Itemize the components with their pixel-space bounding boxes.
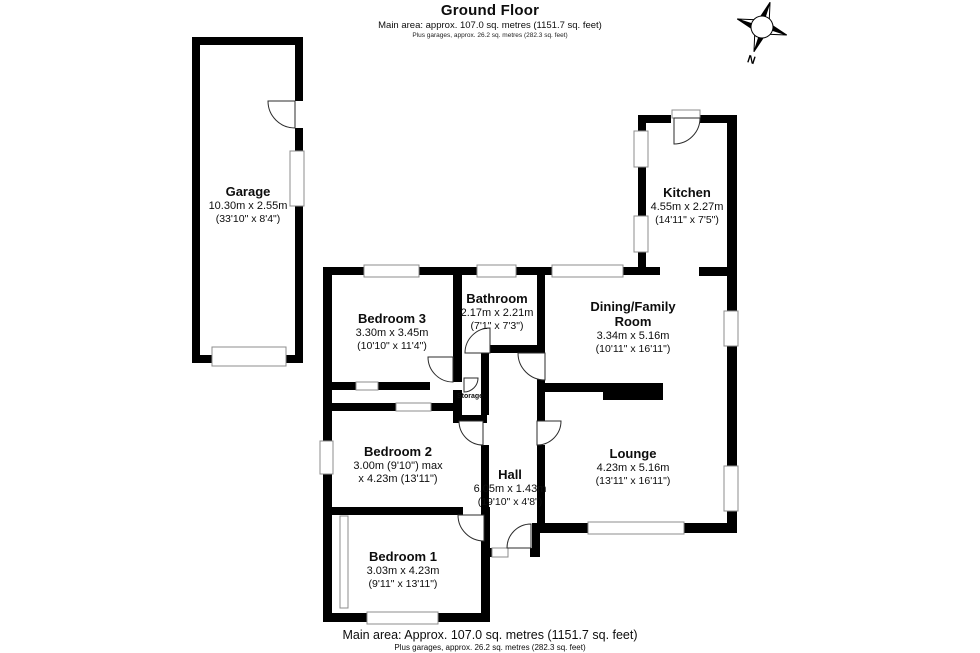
bedroom3-label: Bedroom 3 3.30m x 3.45m (10'10" x 11'4") bbox=[356, 312, 429, 352]
compass-north-label: N bbox=[746, 53, 757, 67]
room-dims-imperial: (9'11" x 13'11") bbox=[367, 578, 440, 590]
wall bbox=[532, 523, 540, 557]
compass-icon: N bbox=[725, 0, 795, 74]
storage-label: Storage bbox=[457, 393, 483, 400]
wall bbox=[323, 403, 455, 411]
garage-door bbox=[212, 347, 286, 366]
door-arc bbox=[428, 357, 453, 382]
door-arc bbox=[518, 353, 545, 380]
wall bbox=[699, 267, 737, 276]
room-name: Bedroom 2 bbox=[353, 445, 442, 460]
door-casing bbox=[672, 110, 700, 118]
wall bbox=[545, 383, 663, 392]
room-dims-imperial: (14'11" x 7'5") bbox=[651, 214, 724, 226]
room-name: Bathroom bbox=[461, 292, 534, 307]
window bbox=[320, 441, 333, 474]
wall bbox=[295, 128, 303, 153]
room-dims-metric: 10.30m x 2.55m bbox=[209, 200, 288, 213]
wardrobe bbox=[340, 516, 348, 608]
wall bbox=[481, 548, 492, 557]
room-name: Kitchen bbox=[651, 186, 724, 201]
door-arc bbox=[537, 421, 561, 445]
hall-label: Hall 6.05m x 1.43m (19'10" x 4'8") bbox=[474, 468, 547, 508]
room-dims-imperial: (10'11" x 16'11") bbox=[572, 343, 694, 355]
garage-label: Garage 10.30m x 2.55m (33'10" x 8'4") bbox=[209, 185, 288, 225]
wall bbox=[537, 275, 545, 353]
dining-family-room-label: Dining/Family Room 3.34m x 5.16m (10'11"… bbox=[572, 300, 694, 355]
bedroom2-label: Bedroom 2 3.00m (9'10") max x 4.23m (13'… bbox=[353, 445, 442, 485]
wall bbox=[192, 37, 303, 45]
door-arc bbox=[268, 101, 295, 128]
kitchen-label: Kitchen 4.55m x 2.27m (14'11" x 7'5") bbox=[651, 186, 724, 226]
room-dims-imperial: (13'11" x 16'11") bbox=[596, 475, 671, 487]
wall bbox=[603, 392, 663, 400]
sidelight-window bbox=[492, 548, 508, 557]
window bbox=[588, 522, 684, 534]
room-dims-metric: 4.55m x 2.27m bbox=[651, 201, 724, 214]
floor-plan: Ground Floor Main area: approx. 107.0 sq… bbox=[0, 0, 980, 653]
wall bbox=[537, 378, 545, 421]
wall bbox=[295, 206, 303, 355]
garage-area-summary: Plus garages, approx. 26.2 sq. metres (2… bbox=[0, 643, 980, 652]
room-dims-metric: 6.05m x 1.43m bbox=[474, 483, 547, 496]
room-dims-metric2: x 4.23m (13'11") bbox=[353, 473, 442, 486]
door-arc bbox=[674, 118, 700, 144]
window bbox=[364, 265, 419, 277]
compass-hub bbox=[748, 13, 776, 41]
bathroom-label: Bathroom 2.17m x 2.21m (7'1" x 7'3") bbox=[461, 292, 534, 332]
lounge-label: Lounge 4.23m x 5.16m (13'11" x 16'11") bbox=[596, 447, 671, 487]
window bbox=[634, 131, 648, 167]
door-arc bbox=[459, 421, 483, 445]
window bbox=[367, 612, 438, 624]
room-dims-imperial: (19'10" x 4'8") bbox=[474, 496, 547, 508]
room-name: Lounge bbox=[596, 447, 671, 462]
room-name: Bedroom 3 bbox=[356, 312, 429, 327]
door-arc bbox=[464, 378, 478, 392]
door-arc bbox=[507, 524, 531, 548]
window bbox=[724, 466, 738, 511]
room-name: Hall bbox=[474, 468, 547, 483]
window bbox=[290, 151, 304, 206]
window bbox=[724, 311, 738, 346]
room-name: Garage bbox=[209, 185, 288, 200]
cupboard bbox=[356, 382, 378, 390]
window bbox=[552, 265, 623, 277]
door-arc bbox=[458, 515, 484, 541]
wardrobe-doors bbox=[396, 403, 431, 411]
room-dims-metric: 2.17m x 2.21m bbox=[461, 307, 534, 320]
door-arc bbox=[465, 328, 490, 353]
wall bbox=[481, 353, 489, 375]
room-dims-metric: 3.34m x 5.16m bbox=[572, 330, 694, 343]
room-dims-imperial: (7'1" x 7'3") bbox=[461, 320, 534, 332]
bedroom1-label: Bedroom 1 3.03m x 4.23m (9'11" x 13'11") bbox=[367, 550, 440, 590]
room-dims-imperial: (33'10" x 8'4") bbox=[209, 213, 288, 225]
main-area-summary: Main area: Approx. 107.0 sq. metres (115… bbox=[0, 628, 980, 642]
room-dims-metric: 4.23m x 5.16m bbox=[596, 462, 671, 475]
room-dims-metric: 3.30m x 3.45m bbox=[356, 327, 429, 340]
room-name: Dining/Family Room bbox=[572, 300, 694, 330]
room-dims-metric: 3.03m x 4.23m bbox=[367, 565, 440, 578]
window bbox=[634, 216, 648, 252]
window bbox=[477, 265, 516, 277]
wall bbox=[323, 507, 463, 515]
room-name: Bedroom 1 bbox=[367, 550, 440, 565]
wall bbox=[490, 345, 537, 353]
wall bbox=[295, 37, 303, 101]
wall bbox=[192, 37, 200, 363]
room-dims-metric: 3.00m (9'10") max bbox=[353, 460, 442, 473]
plan-footer: Main area: Approx. 107.0 sq. metres (115… bbox=[0, 628, 980, 652]
room-dims-imperial: (10'10" x 11'4") bbox=[356, 340, 429, 352]
